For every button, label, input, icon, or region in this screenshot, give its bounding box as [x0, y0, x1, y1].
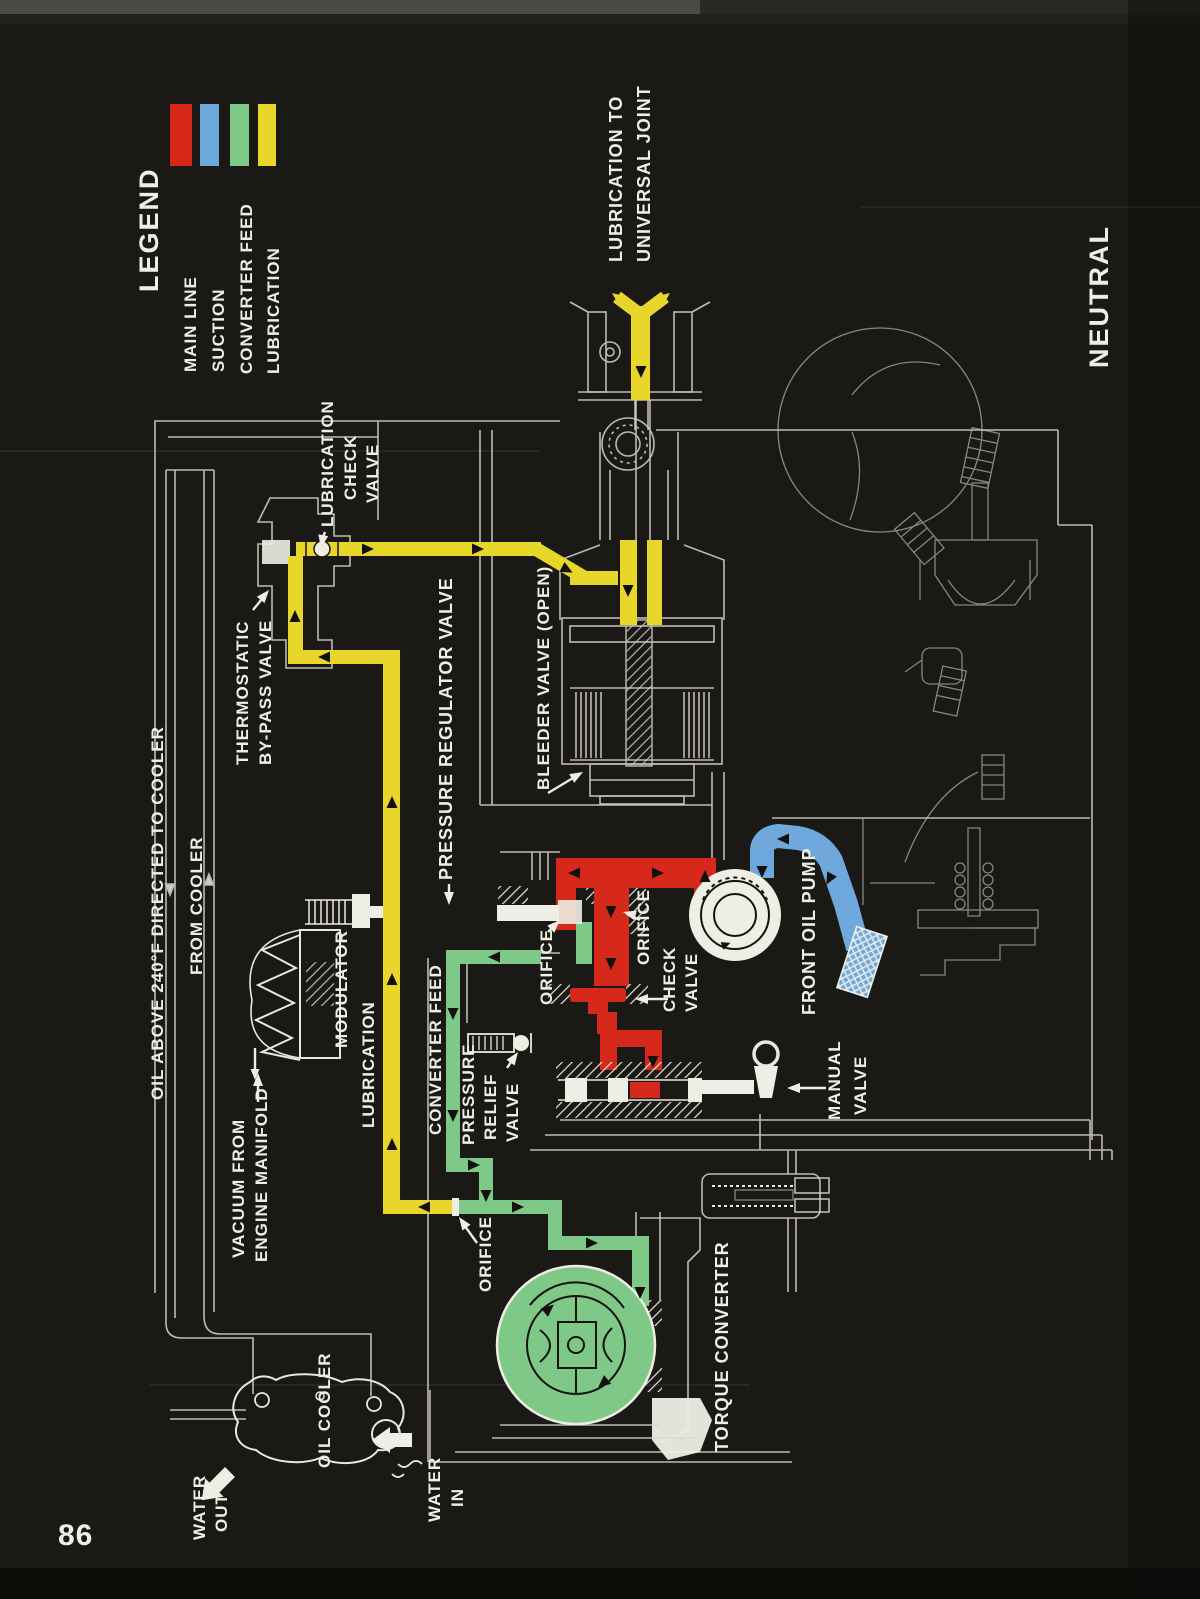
label-check-valve-2: VALVE — [682, 953, 701, 1012]
label-water-in-1: WATER — [425, 1457, 444, 1522]
manual-valve-drawing — [556, 1042, 778, 1118]
label-thermostatic-bypass-2: BY-PASS VALVE — [256, 620, 275, 765]
legend-title: LEGEND — [134, 167, 164, 292]
kickdown-valve-drawing — [702, 1174, 829, 1218]
label-lubrication-check-valve-1: LUBRICATION — [318, 400, 337, 527]
label-vacuum-from-engine-manifold-2: ENGINE MANIFOLD — [252, 1087, 271, 1262]
label-torque-converter: TORQUE CONVERTER — [712, 1241, 732, 1452]
legend-item-lubrication: LUBRICATION — [264, 247, 283, 374]
regulator-spool — [497, 905, 559, 921]
label-lubrication-check-valve-2: CHECK — [341, 435, 360, 500]
legend-item-main-line: MAIN LINE — [181, 276, 200, 372]
torque-converter-oil-fill — [497, 1266, 655, 1424]
flow-direction-arrows — [290, 366, 837, 1299]
label-lubrication-check-valve-3: VALVE — [363, 444, 382, 503]
label-lubrication-to-universal-joint-2: UNIVERSAL JOINT — [634, 85, 654, 262]
label-neutral: NEUTRAL — [1084, 225, 1114, 368]
label-pressure-relief-valve-3: VALVE — [503, 1083, 522, 1142]
label-bleeder-valve: BLEEDER VALVE (OPEN) — [534, 566, 553, 790]
page-number: 86 — [58, 1519, 93, 1552]
legend-item-suction: SUCTION — [209, 289, 228, 373]
legend-swatch-converter-feed — [230, 104, 249, 166]
label-oil-cooler: OIL COOLER — [315, 1353, 334, 1468]
label-modulator: MODULATOR — [332, 930, 351, 1048]
label-check-valve-1: CHECK — [660, 947, 679, 1012]
label-orifice-regulator: ORIFICE — [537, 929, 556, 1005]
regulator-spool-land — [558, 900, 582, 924]
label-front-oil-pump: FRONT OIL PUMP — [799, 847, 819, 1015]
label-lubrication-flow: LUBRICATION — [359, 1001, 378, 1128]
legend-swatch-main-line — [170, 104, 192, 166]
legend-item-converter-feed: CONVERTER FEED — [237, 203, 256, 374]
label-water-out-2: OUT — [212, 1493, 231, 1532]
legend-swatch-lubrication — [258, 104, 276, 166]
label-pressure-regulator-valve: PRESSURE REGULATOR VALVE — [436, 577, 456, 880]
front-oil-pump-drawing — [689, 869, 781, 961]
label-orifice-main: ORIFICE — [634, 889, 653, 965]
label-oil-above-240: OIL ABOVE 240°F DIRECTED TO COOLER — [148, 726, 167, 1100]
lubrication-orifice-plug — [452, 1198, 459, 1216]
legend: LEGEND MAIN LINE SUCTION CONVERTER FEED … — [134, 104, 283, 374]
legend-swatch-suction — [200, 104, 219, 166]
label-pressure-relief-valve-2: RELIEF — [481, 1074, 500, 1140]
label-water-out-1: WATER — [190, 1475, 209, 1540]
label-manual-valve-2: VALVE — [851, 1056, 870, 1115]
label-from-cooler: FROM COOLER — [187, 837, 206, 976]
label-orifice-lubrication: ORIFICE — [476, 1216, 495, 1292]
label-converter-feed-flow: CONVERTER FEED — [426, 964, 445, 1135]
label-vacuum-from-engine-manifold-1: VACUUM FROM — [229, 1119, 248, 1258]
label-water-in-2: IN — [448, 1488, 467, 1507]
governor-output-shaft-drawing — [560, 400, 724, 804]
label-thermostatic-bypass-1: THERMOSTATIC — [233, 620, 252, 765]
manual-page: LEGEND MAIN LINE SUCTION CONVERTER FEED … — [0, 0, 1200, 1599]
label-lubrication-to-universal-joint-1: LUBRICATION TO — [606, 96, 626, 262]
label-pressure-relief-valve-1: PRESSURE — [459, 1043, 478, 1145]
label-manual-valve-1: MANUAL — [825, 1040, 844, 1120]
